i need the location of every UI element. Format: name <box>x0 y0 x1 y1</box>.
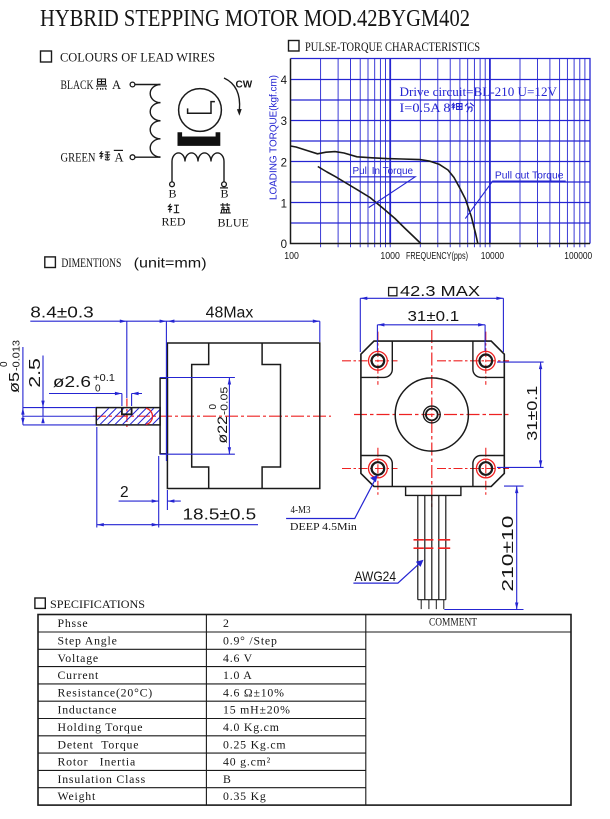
svg-text:100000: 100000 <box>564 250 592 262</box>
svg-text:3: 3 <box>281 116 287 128</box>
svg-text:2.5: 2.5 <box>27 358 44 388</box>
svg-text:1000: 1000 <box>380 250 400 262</box>
svg-text:A: A <box>115 151 124 165</box>
svg-text:COMMENT: COMMENT <box>429 615 478 629</box>
svg-text:31±0.1: 31±0.1 <box>408 308 460 325</box>
svg-text:Weight: Weight <box>58 789 97 803</box>
svg-text:18.5±0.5: 18.5±0.5 <box>183 507 257 524</box>
svg-text:AWG24: AWG24 <box>355 568 397 584</box>
svg-text:4.6 V: 4.6 V <box>223 651 253 665</box>
svg-text:RED: RED <box>162 215 186 229</box>
svg-text:B: B <box>223 772 232 786</box>
svg-text:0.25 Kg.cm: 0.25 Kg.cm <box>223 737 286 751</box>
svg-text:-0.05: -0.05 <box>220 386 231 415</box>
svg-text:PULSE-TORQUE CHARACTERISTICS: PULSE-TORQUE CHARACTERISTICS <box>305 40 480 54</box>
svg-text:SPECIFICATIONS: SPECIFICATIONS <box>50 597 145 611</box>
svg-text:Rotor Inertia: Rotor Inertia <box>58 755 137 769</box>
svg-text:A: A <box>112 78 121 92</box>
svg-text:Insulation Class: Insulation Class <box>58 772 147 786</box>
svg-text:0.35 Kg: 0.35 Kg <box>223 789 267 803</box>
svg-text:BLACK: BLACK <box>61 78 94 92</box>
svg-text:2: 2 <box>120 484 129 501</box>
svg-text:-0.013: -0.013 <box>12 340 23 371</box>
svg-text:Detent Torque: Detent Torque <box>58 737 140 751</box>
svg-text:1: 1 <box>281 199 287 211</box>
svg-text:CW: CW <box>236 80 253 91</box>
svg-text:(unit=mm): (unit=mm) <box>134 255 207 271</box>
svg-text:HYBRID STEPPING MOTOR MOD.42BY: HYBRID STEPPING MOTOR MOD.42BYGM402 <box>40 5 470 32</box>
svg-text:Step Angle: Step Angle <box>58 634 118 648</box>
svg-text:DIMENTIONS: DIMENTIONS <box>61 256 121 270</box>
svg-text:Inductance: Inductance <box>58 703 118 717</box>
svg-text:8.4±0.3: 8.4±0.3 <box>30 305 94 322</box>
svg-text:31±0.1: 31±0.1 <box>524 386 541 441</box>
svg-text:Pull out Torque: Pull out Torque <box>495 170 564 181</box>
svg-text:0: 0 <box>0 361 10 367</box>
svg-text:Drive circuit=BL-210 U=12V: Drive circuit=BL-210 U=12V <box>400 85 558 99</box>
svg-text:Holding Torque: Holding Torque <box>58 720 144 734</box>
svg-text:0: 0 <box>208 404 219 410</box>
svg-text:B: B <box>169 187 177 201</box>
svg-text:FREQUENCY(pps): FREQUENCY(pps) <box>406 250 468 262</box>
svg-text:1.0 A: 1.0 A <box>223 668 253 682</box>
svg-text:4: 4 <box>281 75 288 87</box>
svg-text:4.0 Kg.cm: 4.0 Kg.cm <box>223 720 280 734</box>
svg-text:DEEP 4.5Min: DEEP 4.5Min <box>290 521 358 533</box>
svg-text:ø22: ø22 <box>214 416 230 444</box>
svg-text:BLUE: BLUE <box>218 216 249 230</box>
svg-text:Phsse: Phsse <box>58 616 89 630</box>
svg-text:COLOURS OF LEAD WIRES: COLOURS OF LEAD WIRES <box>60 50 215 65</box>
svg-text:Voltage: Voltage <box>58 651 99 665</box>
svg-text:4.6 Ω±10%: 4.6 Ω±10% <box>223 685 285 699</box>
svg-text:42.3 MAX: 42.3 MAX <box>400 283 480 300</box>
svg-text:B: B <box>221 187 229 201</box>
svg-text:Pull In Torque: Pull In Torque <box>353 166 414 177</box>
svg-text:2: 2 <box>223 616 230 630</box>
svg-text:+0.1: +0.1 <box>93 373 115 384</box>
svg-text:I=0.5A 8: I=0.5A 8 <box>400 101 451 115</box>
svg-text:48Max: 48Max <box>206 305 254 322</box>
svg-text:0: 0 <box>95 384 101 395</box>
svg-text:Resistance(20°C): Resistance(20°C) <box>58 685 154 699</box>
svg-text:15 mH±20%: 15 mH±20% <box>223 703 291 717</box>
svg-text:ø2.6: ø2.6 <box>53 374 91 391</box>
svg-text:210±10: 210±10 <box>500 515 517 592</box>
svg-text:40 g.cm²: 40 g.cm² <box>223 755 271 769</box>
svg-text:4-M3: 4-M3 <box>291 504 311 516</box>
svg-text:10000: 10000 <box>481 250 505 262</box>
svg-text:2: 2 <box>281 158 287 170</box>
svg-text:0.9° /Step: 0.9° /Step <box>223 634 278 648</box>
svg-text:LOADING TORQUE(kgf.cm): LOADING TORQUE(kgf.cm) <box>268 75 280 200</box>
svg-text:ø5: ø5 <box>7 372 23 393</box>
svg-text:100: 100 <box>284 250 299 262</box>
svg-text:Current: Current <box>58 668 100 682</box>
svg-text:GREEN: GREEN <box>61 151 96 165</box>
